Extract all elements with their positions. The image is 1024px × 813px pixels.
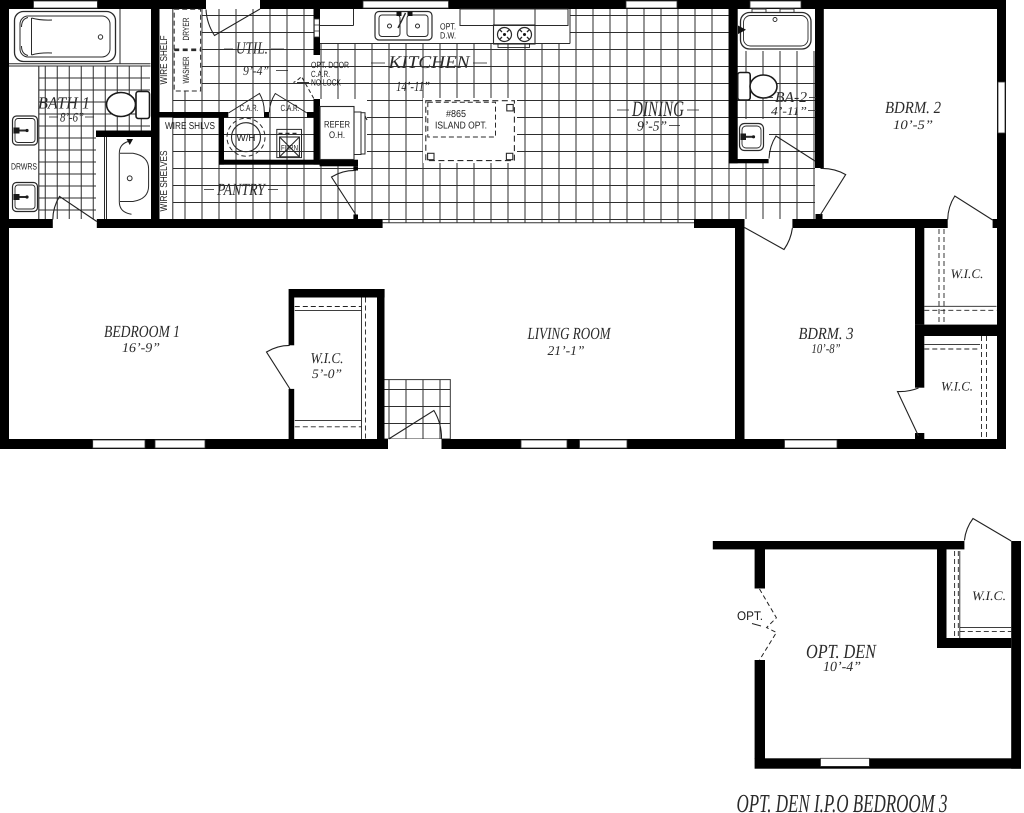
svg-text:W/H: W/H <box>237 133 256 144</box>
svg-text:O.H.: O.H. <box>329 130 345 141</box>
svg-text:PANTRY: PANTRY <box>216 180 266 199</box>
svg-text:LIVING ROOM: LIVING ROOM <box>527 324 611 343</box>
svg-text:21’-1”: 21’-1” <box>548 343 585 358</box>
svg-text:#865: #865 <box>446 109 466 120</box>
svg-text:ISLAND OPT.: ISLAND OPT. <box>435 121 487 132</box>
svg-text:W.I.C.: W.I.C. <box>972 588 1006 603</box>
svg-text:NO LOCK: NO LOCK <box>311 78 341 88</box>
svg-text:UTIL.: UTIL. <box>236 39 268 58</box>
svg-text:W.I.C.: W.I.C. <box>941 379 973 394</box>
svg-text:DRWRS: DRWRS <box>11 162 37 172</box>
svg-text:WASHER: WASHER <box>181 56 191 83</box>
svg-text:W.I.C.: W.I.C. <box>311 351 344 367</box>
svg-text:OPT.: OPT. <box>737 609 763 623</box>
svg-text:9’-4”: 9’-4” <box>243 63 269 78</box>
svg-text:C.A.R.: C.A.R. <box>240 103 259 113</box>
svg-text:WIRE SHELF: WIRE SHELF <box>159 36 170 85</box>
svg-text:W.I.C.: W.I.C. <box>951 266 984 281</box>
svg-text:DRYER: DRYER <box>181 17 191 40</box>
svg-text:FURN: FURN <box>281 144 298 153</box>
svg-text:BEDROOM 1: BEDROOM 1 <box>104 322 180 341</box>
svg-text:10’-8”: 10’-8” <box>812 341 841 356</box>
svg-text:REFER: REFER <box>324 120 350 131</box>
svg-text:OPT. DEN I.P.O BEDROOM 3: OPT. DEN I.P.O BEDROOM 3 <box>737 789 948 813</box>
svg-text:10’-4”: 10’-4” <box>823 660 861 675</box>
svg-text:14’-11”: 14’-11” <box>396 80 430 95</box>
svg-text:9’-5”: 9’-5” <box>637 120 667 135</box>
svg-text:4’-11”: 4’-11” <box>771 104 807 118</box>
svg-text:KITCHEN: KITCHEN <box>387 52 470 72</box>
svg-text:BDRM. 2: BDRM. 2 <box>885 98 941 117</box>
svg-text:WIRE SHELVES: WIRE SHELVES <box>159 150 170 211</box>
svg-text:16’-9”: 16’-9” <box>122 340 160 355</box>
svg-text:WIRE SHLVS: WIRE SHLVS <box>165 121 215 132</box>
svg-text:C.A.R.: C.A.R. <box>281 103 300 113</box>
svg-text:DINING: DINING <box>631 96 684 121</box>
svg-text:8’-6”: 8’-6” <box>60 110 84 125</box>
svg-text:D.W.: D.W. <box>440 31 456 41</box>
svg-text:5’-0”: 5’-0” <box>312 366 342 381</box>
svg-text:10’-5”: 10’-5” <box>893 117 933 132</box>
